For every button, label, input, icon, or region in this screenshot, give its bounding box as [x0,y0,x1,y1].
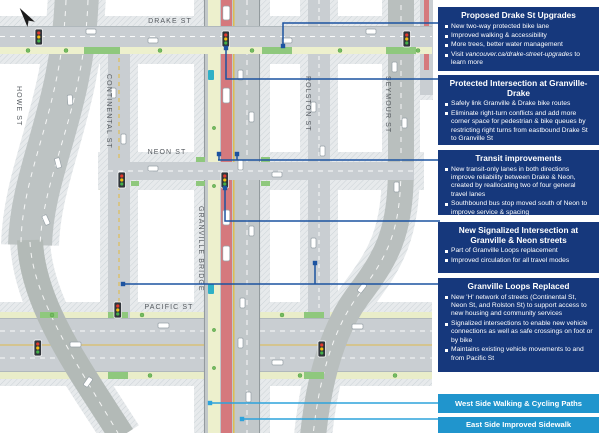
traffic-signal-icon [34,340,42,356]
bus [223,210,230,225]
bullet-item: Eliminate right-turn conflicts and add m… [444,110,593,144]
callout-title: Transit improvements [444,154,593,164]
bus [223,6,230,20]
street-plan-page: DRAKE ST HOWE ST CONTINENTAL ST NEON ST … [0,0,600,433]
callout-protected-intersection: Protected Intersection at Granville-Drak… [438,75,599,145]
street-label-howe: HOWE ST [15,86,22,126]
bus-stop-icon [208,284,214,294]
bullet-item: Safely link Granville & Drake bike route… [444,100,593,108]
callout-transit-improvements: Transit improvements New transit-only la… [438,150,599,215]
callout-title: Granville Loops Replaced [444,282,593,292]
traffic-signal-icon [222,31,230,47]
bullet-item: Visit vancouver.ca/drake-street-upgrades… [444,51,593,68]
callout-title: Protected Intersection at Granville-Drak… [444,79,593,98]
traffic-signal-icon [114,302,122,318]
bullet-item: New 'H' network of streets (Continental … [444,294,593,319]
street-label-drake: DRAKE ST [148,18,192,25]
bullet-item: Signalized intersections to enable new v… [444,320,593,345]
traffic-signal-icon [35,29,43,45]
bus [223,88,230,103]
callout-panel: Proposed Drake St Upgrades New two-way p… [438,0,599,433]
bullet-item: Improved circulation for all travel mode… [444,257,593,265]
banner-east-side-sidewalk: East Side Improved Sidewalk [438,417,599,433]
street-label-neon: NEON ST [148,149,187,156]
bullet-item: Southbound bus stop moved south of Neon … [444,200,593,215]
street-label-seymour: SEYMOUR ST [384,76,391,133]
bullet-item: More trees, better water management [444,41,593,49]
drake-street-upgrades-link[interactable]: vancouver.ca/drake-street-upgrades [465,51,572,58]
street-label-granville: GRANVILLE BRIDGE [197,206,204,292]
traffic-signal-icon [221,172,229,188]
bullet-item: New two-way protected bike lane [444,23,593,31]
banner-west-side-paths: West Side Walking & Cycling Paths [438,394,599,413]
traffic-signal-icon [118,172,126,188]
bullet-item: New transit-only lanes in both direction… [444,166,593,200]
bullet-item: Improved walking & accessibility [444,32,593,40]
street-label-pacific: PACIFIC ST [145,304,194,311]
callout-loops-replaced: Granville Loops Replaced New 'H' network… [438,278,599,372]
traffic-signal-icon [318,341,326,357]
bullet-item: Maintains existing vehicle movements to … [444,346,593,363]
bus-stop-icon [208,70,214,80]
callout-signalized-intersection: New Signalized Intersection at Granville… [438,222,599,273]
bullet-item: Part of Granville Loops replacement [444,247,593,255]
callout-drake-upgrades: Proposed Drake St Upgrades New two-way p… [438,7,599,71]
callout-title: Proposed Drake St Upgrades [444,11,593,21]
bus [223,246,230,261]
callout-title: New Signalized Intersection at Granville… [444,226,593,245]
traffic-signal-icon [403,31,411,47]
street-label-continental: CONTINENTAL ST [105,74,112,149]
street-label-rolston: ROLSTON ST [304,76,311,132]
